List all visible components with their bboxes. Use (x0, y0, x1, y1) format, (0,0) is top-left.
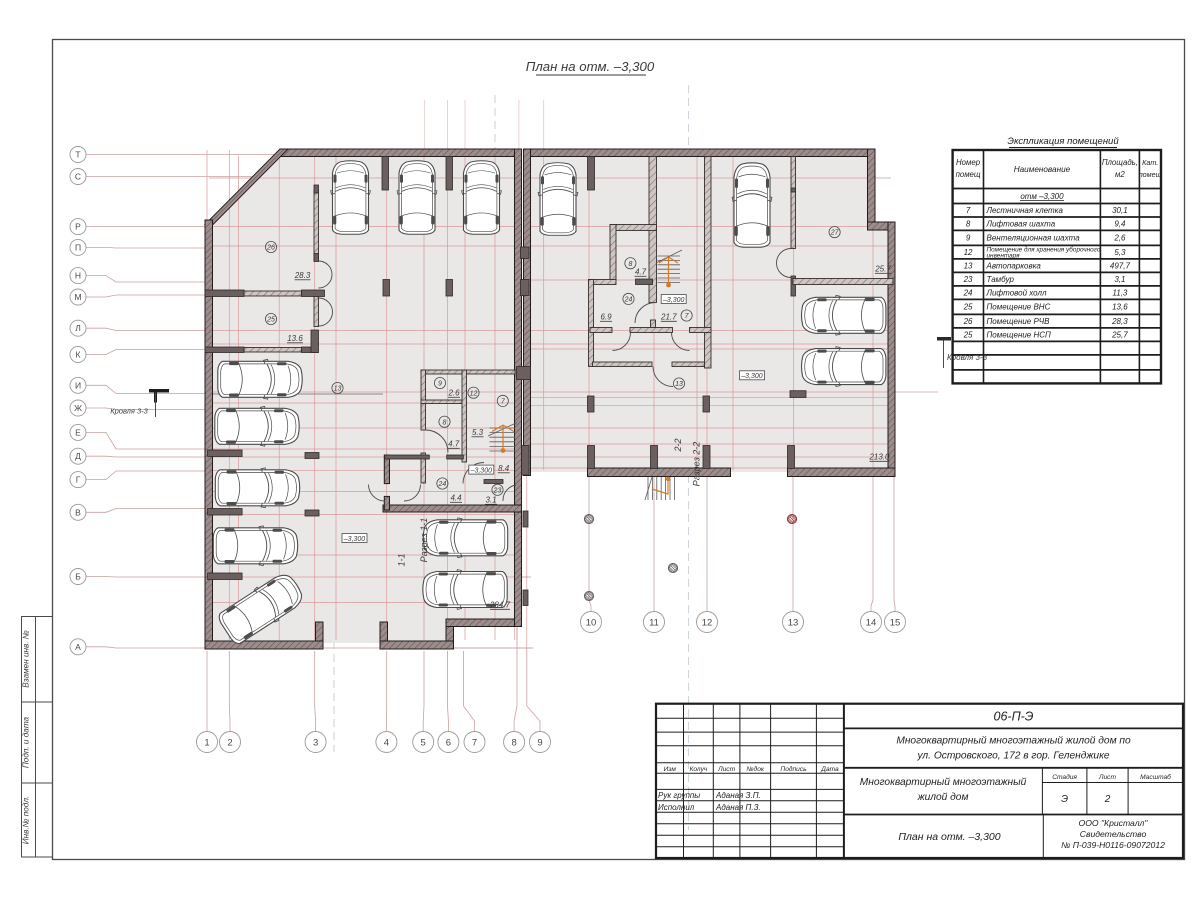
svg-text:Аданая З.П.: Аданая З.П. (715, 791, 761, 800)
svg-text:Взамен инв. №: Взамен инв. № (22, 630, 31, 688)
svg-text:284.7: 284.7 (489, 601, 511, 610)
svg-text:Аданая П.З.: Аданая П.З. (715, 803, 761, 812)
svg-text:2.6: 2.6 (447, 389, 460, 398)
svg-text:2: 2 (1104, 794, 1111, 805)
svg-text:В: В (75, 507, 81, 517)
svg-text:25: 25 (266, 317, 275, 324)
svg-text:Т: Т (75, 150, 80, 160)
svg-text:26: 26 (963, 317, 973, 326)
svg-text:3,1: 3,1 (1114, 275, 1125, 284)
svg-text:8: 8 (966, 220, 971, 229)
svg-text:7: 7 (472, 737, 477, 748)
svg-text:28,3: 28,3 (1111, 317, 1128, 326)
svg-text:25.7: 25.7 (874, 265, 891, 274)
svg-text:06-П-Э: 06-П-Э (994, 710, 1034, 724)
svg-text:м2: м2 (1115, 170, 1125, 179)
svg-text:11: 11 (649, 617, 659, 628)
svg-text:5.3: 5.3 (472, 428, 484, 437)
svg-text:13,6: 13,6 (1112, 303, 1128, 312)
svg-text:жилой дом: жилой дом (917, 792, 969, 803)
svg-text:12: 12 (470, 390, 478, 397)
svg-text:ООО "Кристалл": ООО "Кристалл" (1079, 818, 1149, 828)
svg-text:Стадия: Стадия (1052, 773, 1077, 781)
svg-text:9: 9 (537, 737, 542, 748)
svg-text:2: 2 (227, 737, 232, 748)
svg-text:2,6: 2,6 (1113, 234, 1126, 243)
svg-text:213.0: 213.0 (868, 453, 890, 462)
svg-text:А: А (75, 642, 81, 652)
svg-text:И: И (75, 380, 81, 390)
svg-text:8: 8 (628, 261, 632, 268)
svg-text:23: 23 (493, 487, 502, 494)
svg-text:8: 8 (511, 737, 516, 748)
svg-text:Э: Э (1061, 794, 1068, 805)
svg-text:Наименование: Наименование (1014, 165, 1071, 174)
svg-text:Лифтовой холл: Лифтовой холл (986, 288, 1047, 297)
svg-text:Тамбур: Тамбур (987, 275, 1015, 284)
svg-text:12: 12 (702, 617, 713, 628)
svg-text:Н: Н (75, 271, 81, 281)
svg-text:8.4: 8.4 (498, 464, 510, 473)
svg-text:Б: Б (75, 572, 81, 582)
svg-text:6.9: 6.9 (600, 313, 612, 322)
svg-text:4.4: 4.4 (450, 494, 462, 503)
svg-text:Кат.: Кат. (1142, 158, 1158, 167)
svg-text:Разрез 1-1: Разрез 1-1 (419, 518, 429, 563)
svg-text:Подпись: Подпись (780, 765, 807, 773)
svg-text:Колуч: Колуч (690, 766, 708, 773)
svg-text:3: 3 (313, 737, 318, 748)
svg-text:13: 13 (675, 381, 683, 388)
svg-text:10: 10 (586, 617, 597, 628)
svg-text:Лист: Лист (1098, 774, 1116, 781)
svg-text:497,7: 497,7 (1110, 261, 1131, 270)
svg-text:Подп. и дата: Подп. и дата (22, 716, 31, 768)
svg-text:24: 24 (963, 288, 973, 297)
svg-text:Р: Р (75, 222, 81, 232)
svg-text:К: К (76, 350, 81, 360)
svg-text:9: 9 (438, 381, 442, 388)
svg-text:Помещение НСП: Помещение НСП (987, 330, 1052, 339)
svg-text:Е: Е (75, 427, 81, 437)
svg-text:Ж: Ж (74, 403, 82, 413)
svg-text:Инв.№ подл.: Инв.№ подл. (22, 796, 31, 845)
svg-text:–3,300: –3,300 (662, 297, 685, 304)
svg-text:№ П-039-Н0116-09072012: № П-039-Н0116-09072012 (1061, 840, 1165, 850)
svg-text:26: 26 (266, 245, 275, 252)
svg-text:28.3: 28.3 (294, 271, 311, 280)
svg-text:Лифтовая шахта: Лифтовая шахта (986, 220, 1056, 229)
svg-text:25,7: 25,7 (1111, 330, 1128, 339)
svg-text:Изм: Изм (664, 766, 677, 773)
svg-text:План на отм. –3,300: План на отм. –3,300 (526, 59, 655, 74)
svg-text:5,3: 5,3 (1114, 248, 1126, 257)
svg-text:21.7: 21.7 (660, 313, 677, 322)
svg-text:25: 25 (963, 330, 973, 339)
svg-text:Вентеляционная шахта: Вентеляционная шахта (987, 234, 1081, 243)
svg-text:Разрез 2-2: Разрез 2-2 (692, 442, 702, 487)
svg-text:Д: Д (75, 451, 81, 461)
svg-text:27: 27 (830, 230, 840, 237)
svg-text:П: П (75, 242, 81, 252)
svg-text:1: 1 (204, 737, 209, 748)
svg-text:Номер: Номер (956, 158, 981, 167)
svg-text:12: 12 (964, 248, 973, 257)
svg-text:5: 5 (421, 737, 426, 748)
svg-text:25: 25 (963, 303, 973, 312)
svg-text:15: 15 (890, 617, 901, 628)
svg-text:Свидетельство: Свидетельство (1080, 829, 1147, 839)
svg-text:Лист: Лист (717, 766, 735, 773)
svg-text:3.1: 3.1 (485, 496, 496, 505)
svg-text:Г: Г (76, 475, 81, 485)
svg-text:инвентаря: инвентаря (987, 253, 1021, 260)
svg-text:4.7: 4.7 (635, 268, 647, 277)
svg-text:1-1: 1-1 (397, 553, 407, 566)
svg-text:13.6: 13.6 (287, 334, 303, 343)
svg-text:помещ: помещ (1139, 170, 1162, 179)
svg-text:6: 6 (446, 737, 451, 748)
svg-text:4: 4 (384, 737, 389, 748)
svg-text:9,4: 9,4 (1114, 220, 1126, 229)
svg-text:Дата: Дата (820, 766, 839, 773)
svg-text:Площадь,: Площадь, (1102, 158, 1138, 167)
svg-text:–3,300: –3,300 (470, 467, 493, 474)
svg-text:Многоквартирный многоэтажный: Многоквартирный многоэтажный (860, 777, 1027, 788)
svg-text:Л: Л (75, 323, 81, 333)
svg-text:8: 8 (443, 419, 447, 426)
svg-text:Исполнил: Исполнил (658, 803, 695, 812)
svg-text:9: 9 (966, 234, 971, 243)
svg-text:13: 13 (334, 386, 342, 393)
svg-text:Кровля 3-3: Кровля 3-3 (110, 407, 148, 416)
svg-text:14: 14 (866, 617, 877, 628)
svg-text:Рук группы: Рук группы (658, 791, 700, 800)
svg-text:Помещение ВНС: Помещение ВНС (987, 303, 1051, 312)
svg-text:24: 24 (624, 297, 633, 304)
svg-text:Масштаб: Масштаб (1140, 773, 1171, 781)
svg-text:№док: №док (746, 765, 764, 773)
svg-text:4.7: 4.7 (448, 440, 460, 449)
svg-text:отм –3,300: отм –3,300 (1020, 192, 1064, 201)
svg-text:помещ: помещ (956, 170, 981, 179)
svg-text:–3,300: –3,300 (343, 536, 366, 543)
svg-text:24: 24 (438, 481, 447, 488)
svg-text:Многоквартирный многоэтажный ж: Многоквартирный многоэтажный жилой дом п… (896, 736, 1131, 747)
svg-text:ул. Островского, 172 в гор. Ге: ул. Островского, 172 в гор. Геленджике (916, 751, 1109, 762)
svg-text:2-2: 2-2 (673, 438, 683, 452)
svg-text:13: 13 (964, 261, 973, 270)
svg-text:–3,300: –3,300 (740, 373, 763, 380)
svg-text:Помещение РЧВ: Помещение РЧВ (987, 317, 1051, 326)
svg-text:Автопарковка: Автопарковка (986, 261, 1042, 270)
svg-text:11,3: 11,3 (1112, 288, 1128, 297)
svg-text:Лестничная клетка: Лестничная клетка (986, 206, 1064, 215)
svg-text:23: 23 (963, 275, 973, 284)
svg-text:С: С (75, 172, 81, 182)
svg-text:Экспликация помещений: Экспликация помещений (1007, 136, 1119, 147)
svg-text:М: М (74, 292, 81, 302)
svg-text:13: 13 (788, 617, 799, 628)
svg-text:7: 7 (966, 206, 971, 215)
svg-text:30,1: 30,1 (1112, 206, 1128, 215)
svg-text:План на отм. –3,300: План на отм. –3,300 (898, 831, 1000, 843)
